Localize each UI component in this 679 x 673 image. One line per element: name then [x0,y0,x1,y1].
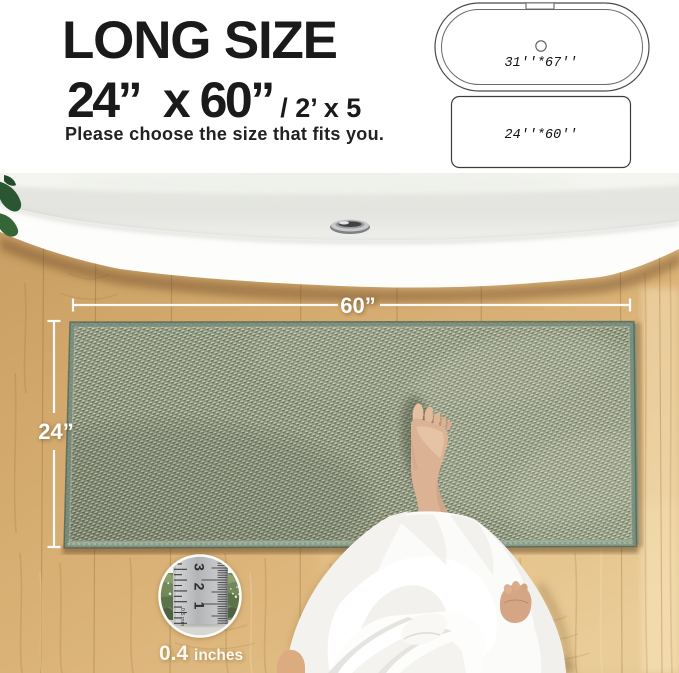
svg-text:60”: 60” [340,293,375,318]
svg-text:24”: 24” [38,419,73,444]
svg-text:31''*67'': 31''*67'' [505,56,578,71]
svg-text:1: 1 [192,602,208,610]
svg-text:24''*60'': 24''*60'' [505,128,578,143]
svg-text:2: 2 [192,583,208,591]
svg-text:0.5 mm: 0.5 mm [179,608,185,627]
svg-text:3: 3 [192,563,208,571]
